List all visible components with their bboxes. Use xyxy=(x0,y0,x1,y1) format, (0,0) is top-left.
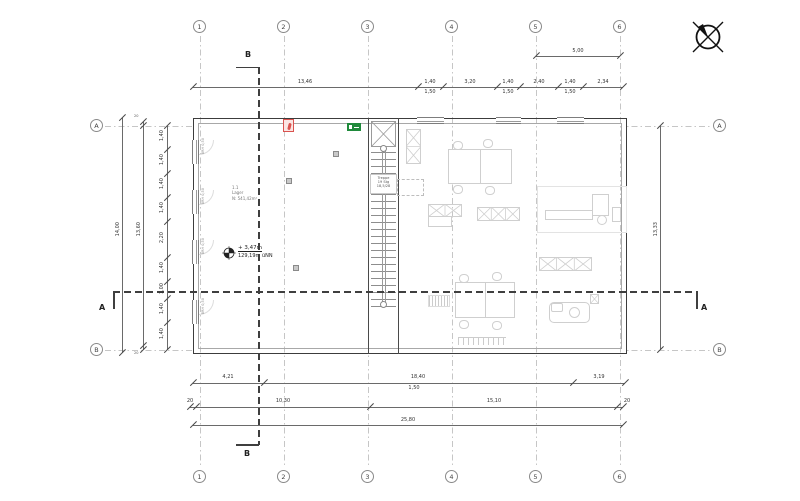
window xyxy=(192,240,199,264)
machine-part xyxy=(551,303,563,312)
dim-value: 13,33 xyxy=(654,222,659,236)
dim-value: 3,19 xyxy=(587,375,611,380)
chair xyxy=(485,186,495,195)
window xyxy=(192,190,199,214)
level-marker-icon xyxy=(222,246,236,260)
grid-bubble-b-left: B xyxy=(90,343,103,356)
stair-tread xyxy=(371,236,396,237)
machine-body xyxy=(592,194,609,216)
floor-plan-canvas: BRH 0,50 BRH 0,50 BRH 0,50 BRH 0,50 Trep… xyxy=(0,0,800,501)
dim-value: 1,40 xyxy=(160,303,165,314)
chair xyxy=(492,272,502,281)
section-label-a: A xyxy=(701,303,707,312)
grid-bubble-5-top: 5 xyxy=(529,20,542,33)
machine-arm xyxy=(545,210,593,220)
window xyxy=(192,300,199,324)
dim-value: 1,40 xyxy=(160,130,165,141)
north-arrow-icon xyxy=(688,18,728,58)
dim-value: 2,34 xyxy=(591,80,615,85)
dim-value: 2,20 xyxy=(160,232,165,243)
small-x-box xyxy=(590,294,599,304)
dim-value: 1,40 xyxy=(160,154,165,165)
stair-tread xyxy=(371,299,396,300)
workbench xyxy=(428,216,452,227)
dim-value: 3,20 xyxy=(458,80,482,85)
grid-bubble-1-bottom: 1 xyxy=(193,470,206,483)
stair-post xyxy=(380,145,387,152)
stair-tread xyxy=(371,194,396,195)
chair xyxy=(459,320,469,329)
section-b-elbow xyxy=(236,444,259,446)
shelf-unit xyxy=(406,129,421,164)
section-line-b xyxy=(258,67,260,445)
stair-tread xyxy=(371,166,396,167)
dim-value: 13,46 xyxy=(293,80,317,85)
dim-value: 1,40 xyxy=(160,328,165,339)
dim-value: 13,60 xyxy=(137,222,142,236)
dim-value: 4,21 xyxy=(216,375,240,380)
stair-tread xyxy=(371,278,396,279)
dim-value: 15,10 xyxy=(482,399,506,404)
section-label-a: A xyxy=(99,303,105,312)
dim-line xyxy=(167,126,168,350)
floor-grate xyxy=(428,295,450,307)
window-sill-label: BRH 0,50 xyxy=(202,298,206,314)
dim-value: 1,50 xyxy=(402,386,426,391)
dim-tick xyxy=(621,379,628,386)
stair-tread xyxy=(371,229,396,230)
column xyxy=(286,178,292,184)
dashed-equipment-outline xyxy=(397,179,424,196)
dim-line xyxy=(193,425,623,426)
section-b-elbow xyxy=(236,67,259,69)
dim-line xyxy=(143,122,144,350)
dim-value: 18,40 xyxy=(406,375,430,380)
stair-tread xyxy=(371,250,396,251)
chair xyxy=(453,141,463,150)
stair-tread xyxy=(371,215,396,216)
chair xyxy=(492,321,502,330)
dim-value: 20 xyxy=(134,115,138,119)
stair-tread xyxy=(371,208,396,209)
dim-value: 1,50 xyxy=(496,90,520,95)
dim-value: 14,00 xyxy=(116,222,121,236)
chair xyxy=(459,274,469,283)
stair-tread xyxy=(371,201,396,202)
stair-tread xyxy=(371,285,396,286)
stair-tread xyxy=(371,159,396,160)
workbench xyxy=(539,257,592,271)
chair xyxy=(483,139,493,148)
stair-tread xyxy=(371,257,396,258)
machine-attachment xyxy=(612,207,621,222)
grid-bubble-1-top: 1 xyxy=(193,20,206,33)
machine-dial xyxy=(569,307,580,318)
grid-bubble-6-top: 6 xyxy=(613,20,626,33)
window xyxy=(192,140,199,164)
section-a-elbow xyxy=(113,291,115,309)
stair-tread xyxy=(371,271,396,272)
dim-line xyxy=(122,118,123,353)
column xyxy=(293,265,299,271)
dim-line xyxy=(660,126,661,350)
dim-value: 1,40 xyxy=(160,178,165,189)
section-label-b: B xyxy=(244,449,250,458)
grid-bubble-6-bottom: 6 xyxy=(613,470,626,483)
window xyxy=(557,117,584,124)
stair-post xyxy=(380,301,387,308)
grid-bubble-3-bottom: 3 xyxy=(361,470,374,483)
column xyxy=(333,151,339,157)
dim-line xyxy=(190,407,623,408)
radiator xyxy=(458,337,506,345)
room-area: N: 541,42m² xyxy=(232,196,257,201)
stair-tread xyxy=(371,222,396,223)
machine-dial xyxy=(597,215,607,225)
grid-bubble-5-bottom: 5 xyxy=(529,470,542,483)
dim-line xyxy=(193,383,625,384)
dim-value: 1,50 xyxy=(418,90,442,95)
workbench xyxy=(477,207,520,221)
stair-tread xyxy=(371,152,396,153)
dim-value: 1,40 xyxy=(160,202,165,213)
level-datum: 129,19m üNN xyxy=(238,253,273,259)
dim-value: 2,40 xyxy=(527,80,551,85)
fire-extinguisher-icon xyxy=(283,119,294,132)
stair-dims: 18,5/28 xyxy=(371,184,396,188)
grid-bubble-2-bottom: 2 xyxy=(277,470,290,483)
dim-value: 25,80 xyxy=(396,418,420,423)
dim-value: 1,50 xyxy=(558,90,582,95)
window-sill-label: BRH 0,50 xyxy=(202,138,206,154)
elevator-x-box xyxy=(371,121,396,147)
grid-bubble-a-left: A xyxy=(90,119,103,132)
grid-bubble-3-top: 3 xyxy=(361,20,374,33)
grid-bubble-b-right: B xyxy=(713,343,726,356)
table-divider xyxy=(485,283,486,317)
table-divider xyxy=(480,150,481,183)
grid-bubble-a-right: A xyxy=(713,119,726,132)
dim-line xyxy=(536,56,620,57)
stair-label: Treppe 19 Stg 18,5/28 xyxy=(370,174,397,194)
dim-value: 10,30 xyxy=(271,399,295,404)
chair xyxy=(453,185,463,194)
window-sill-label: BRH 0,50 xyxy=(202,238,206,254)
section-label-b: B xyxy=(245,50,251,59)
emergency-exit-icon xyxy=(347,123,361,131)
dim-value: 20 xyxy=(134,352,138,356)
dim-value: 5,00 xyxy=(566,49,590,54)
window xyxy=(496,117,521,124)
grid-bubble-4-top: 4 xyxy=(445,20,458,33)
room-label: 1.1 Lager N: 541,42m² xyxy=(232,185,257,201)
dim-value: 1,40 xyxy=(160,262,165,273)
stair-tread xyxy=(371,243,396,244)
stair-tread xyxy=(371,264,396,265)
grid-bubble-4-bottom: 4 xyxy=(445,470,458,483)
section-line-a xyxy=(113,291,697,293)
window-sill-label: BRH 0,50 xyxy=(202,188,206,204)
window xyxy=(417,117,444,124)
grid-bubble-2-top: 2 xyxy=(277,20,290,33)
section-a-elbow xyxy=(696,291,698,309)
